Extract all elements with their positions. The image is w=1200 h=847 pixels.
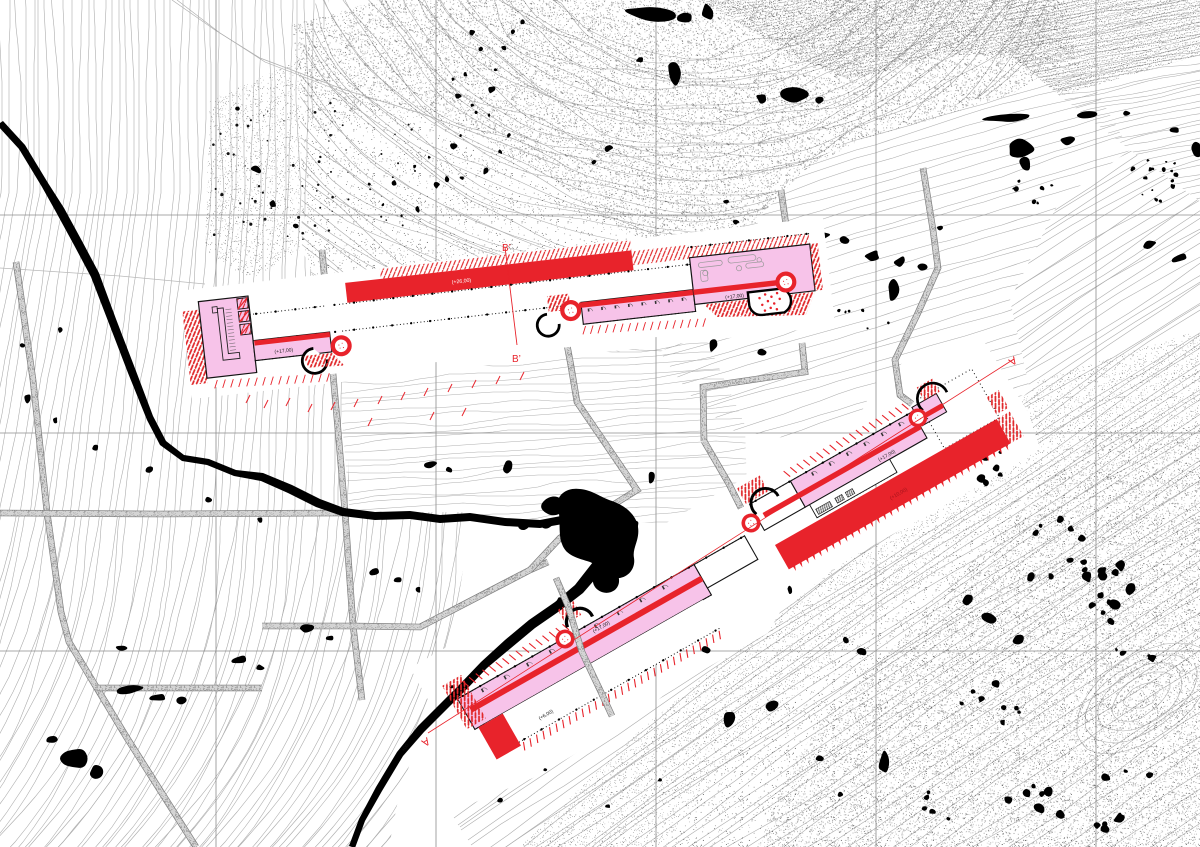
svg-text:B’: B’	[512, 354, 521, 365]
svg-text:B’: B’	[502, 243, 511, 254]
